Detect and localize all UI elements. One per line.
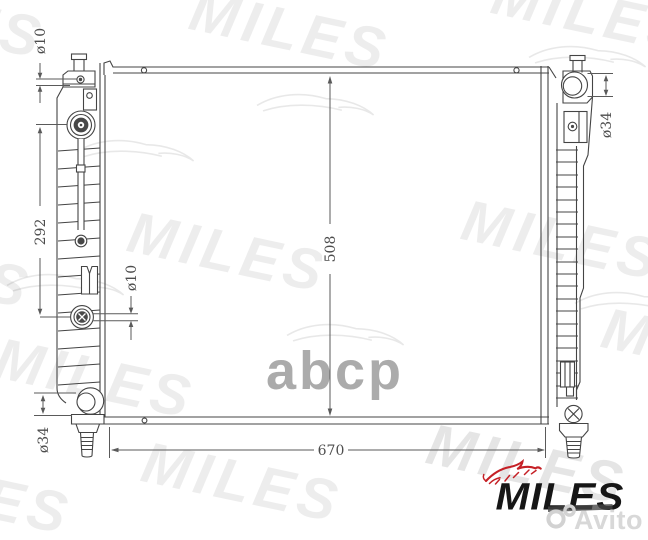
dim-label-bottom-left-pipe: ø34	[36, 427, 52, 453]
drawing-canvas: MILES MILES MILES MILES MILES MILES MILE…	[0, 0, 648, 540]
miles-watermark-text: MILES	[184, 0, 395, 83]
dim-left-span: 292	[32, 125, 71, 318]
right-tank-ribs	[556, 150, 578, 398]
dim-label-top-right-pipe: ø34	[599, 112, 615, 138]
avito-watermark-text: Avito	[574, 505, 643, 535]
dim-top-left-hole: ø10	[33, 28, 77, 103]
abcp-watermark-text: abcp	[266, 341, 404, 401]
miles-watermark-text: MILES	[0, 216, 38, 322]
miles-watermark-text: MILES	[596, 296, 648, 402]
cheetah-ghost-icon	[76, 129, 195, 179]
dim-label-left-port: ø10	[124, 265, 140, 291]
dim-label-core-width: 670	[318, 443, 345, 459]
radiator-technical-drawing: MILES MILES MILES MILES MILES MILES MILE…	[0, 0, 648, 540]
dim-label-core-height: 508	[323, 236, 339, 263]
miles-watermark-text: MILES	[0, 442, 78, 540]
miles-watermark-text: MILES	[456, 188, 648, 294]
dim-label-top-left-hole: ø10	[33, 28, 49, 54]
miles-watermark-text: MILES	[122, 200, 333, 306]
cheetah-ghost-icon	[256, 83, 375, 133]
dim-label-left-span: 292	[33, 219, 49, 246]
